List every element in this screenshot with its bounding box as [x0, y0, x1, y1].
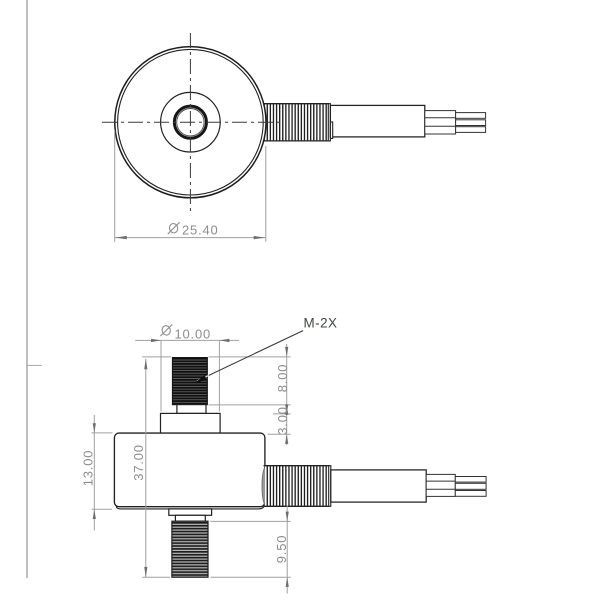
- svg-text:10.00: 10.00: [175, 327, 212, 342]
- svg-text:37.00: 37.00: [131, 444, 146, 481]
- svg-text:M-2X: M-2X: [304, 316, 338, 331]
- svg-text:3.00: 3.00: [275, 406, 290, 435]
- svg-text:13.00: 13.00: [81, 450, 96, 487]
- svg-text:9.50: 9.50: [274, 535, 289, 564]
- svg-text:8.00: 8.00: [275, 364, 290, 393]
- svg-text:25.40: 25.40: [182, 223, 219, 238]
